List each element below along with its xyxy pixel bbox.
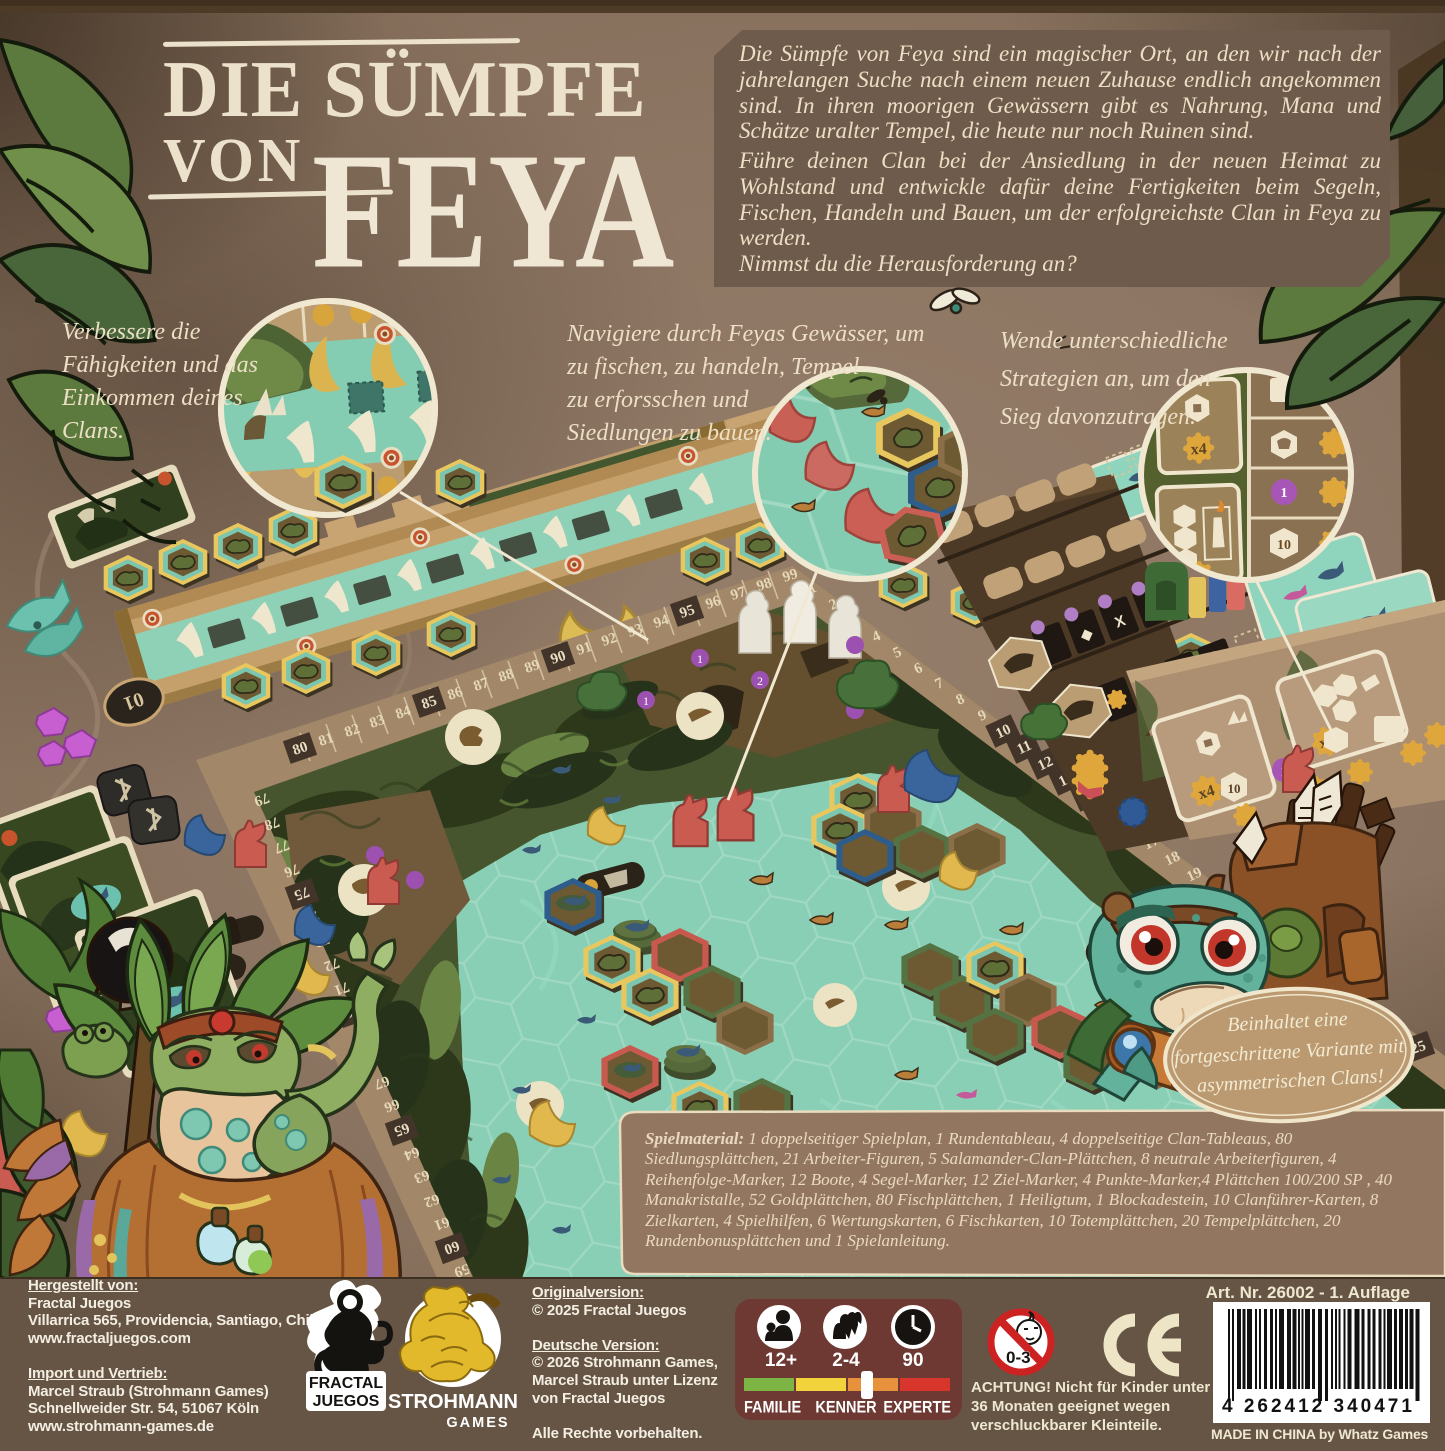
svg-text:FRACTAL: FRACTAL [309, 1375, 384, 1392]
svg-text:90: 90 [902, 1350, 923, 1371]
svg-text:EXPERTE: EXPERTE [883, 1399, 951, 1417]
svg-text:STROHMANN: STROHMANN [388, 1391, 518, 1413]
svg-text:0-3: 0-3 [1006, 1348, 1031, 1367]
svg-text:JUEGOS: JUEGOS [313, 1393, 380, 1410]
svg-text:10: 10 [1277, 538, 1291, 553]
svg-text:GAMES: GAMES [446, 1415, 509, 1431]
svg-text:1: 1 [1281, 486, 1288, 501]
svg-text:4 262412 340471: 4 262412 340471 [1222, 1396, 1415, 1417]
svg-text:FAMILIE: FAMILIE [744, 1399, 801, 1417]
svg-text:x4: x4 [1190, 441, 1207, 459]
svg-text:12+: 12+ [765, 1350, 797, 1371]
svg-text:KENNER: KENNER [815, 1399, 876, 1417]
svg-text:2: 2 [757, 674, 763, 688]
svg-text:1: 1 [643, 694, 649, 708]
svg-text:2-4: 2-4 [832, 1350, 860, 1371]
svg-text:10: 10 [1228, 781, 1241, 796]
svg-text:1: 1 [697, 652, 703, 666]
